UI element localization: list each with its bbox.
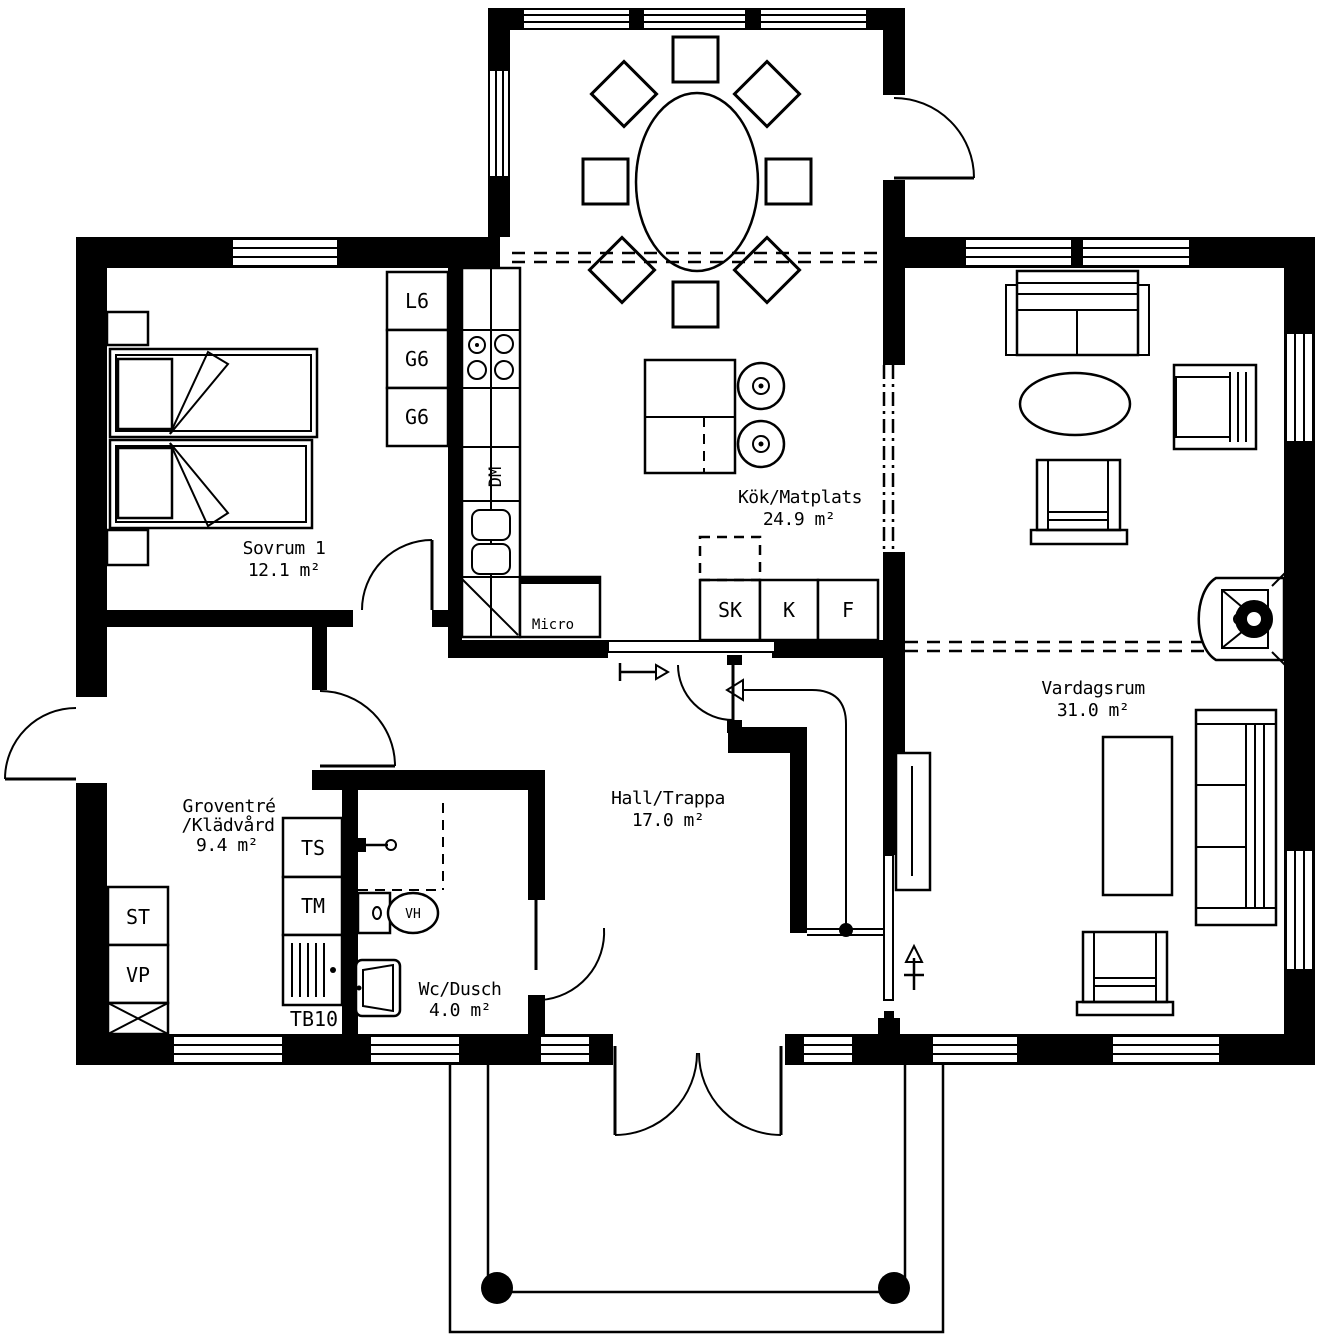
label-k: K — [783, 598, 795, 622]
window-bath-bottom — [370, 1036, 460, 1063]
window-dining-top-3 — [760, 9, 867, 29]
label-sk: SK — [718, 598, 742, 622]
bedroom-furniture — [107, 312, 317, 565]
room-label-hall: Hall/Trappa — [611, 788, 725, 809]
window-living-right-2 — [1286, 850, 1313, 970]
label-vp: VP — [126, 963, 150, 987]
stool-1 — [738, 363, 784, 409]
armchair-mid — [1031, 460, 1127, 544]
room-area-living: 31.0 m² — [1057, 700, 1129, 721]
window-entry-sidelight-right — [803, 1036, 853, 1063]
label-ts: TS — [301, 836, 325, 860]
room-area-hall: 17.0 m² — [632, 810, 704, 831]
sofa-two-seat — [1006, 271, 1149, 355]
window-dining-top-1 — [523, 9, 630, 29]
porch-post-left — [481, 1272, 513, 1304]
crossed-box — [108, 1003, 168, 1034]
window-dining-top-2 — [643, 9, 746, 29]
bed-1 — [110, 349, 317, 437]
dining-chair-bottom-right — [734, 237, 799, 302]
dashed-cabinet-above — [700, 537, 760, 580]
room-area-bath: 4.0 m² — [429, 1000, 491, 1021]
nightstand-1 — [107, 312, 148, 345]
dining-chair-bottom — [673, 282, 718, 327]
stool-2 — [738, 421, 784, 467]
window-living-top-2 — [1082, 239, 1190, 266]
label-tm: TM — [301, 894, 325, 918]
label-st: ST — [126, 905, 150, 929]
laundry-bench-tb10 — [283, 935, 342, 1005]
toilet — [358, 893, 438, 933]
dining-furniture — [583, 37, 811, 327]
room-label-bedroom: Sovrum 1 — [243, 538, 326, 559]
dining-chair-bottom-left — [589, 237, 654, 302]
sliding-door-kitchen — [585, 641, 775, 652]
room-label-bath: Wc/Dusch — [419, 979, 502, 1000]
window-bedroom-top — [232, 239, 338, 266]
label-dm: DM — [486, 467, 506, 487]
floor-plan-drawing: Sovrum 1 12.1 m² Kök/Matplats 24.9 m² Va… — [0, 0, 1319, 1344]
door-bedroom — [362, 540, 432, 610]
bed-2 — [110, 440, 312, 528]
oval-coffee-table — [1020, 373, 1130, 435]
room-area-bedroom: 12.1 m² — [248, 560, 320, 581]
label-g6-1: G6 — [405, 347, 429, 371]
label-l6: L6 — [405, 289, 429, 313]
room-label-utility-1: Groventré — [182, 796, 275, 817]
window-entry-sidelight-left — [540, 1036, 590, 1063]
dining-table — [636, 93, 758, 271]
window-living-bottom-1 — [932, 1036, 1018, 1063]
window-living-top-1 — [965, 239, 1072, 266]
room-label-utility-2: /Klädvård — [181, 815, 274, 836]
door-dining-exterior — [883, 95, 974, 180]
dining-chair-top-right — [734, 61, 799, 126]
kitchen-counter — [462, 268, 520, 637]
shower — [358, 803, 443, 890]
armchair-bottom — [1077, 932, 1173, 1015]
porch-post-right — [878, 1272, 910, 1304]
door-utility — [320, 691, 395, 766]
door-entrance-double — [613, 1034, 785, 1135]
label-tb10: TB10 — [290, 1007, 338, 1031]
kitchen-island — [645, 360, 735, 473]
floor-plan-page: Sovrum 1 12.1 m² Kök/Matplats 24.9 m² Va… — [0, 0, 1319, 1344]
dining-chair-right — [766, 159, 811, 204]
window-utility-bottom — [173, 1036, 283, 1063]
door-stair — [678, 665, 733, 720]
label-g6-2: G6 — [405, 405, 429, 429]
entrance-up-arrow-icon — [904, 946, 924, 990]
room-area-kitchen: 24.9 m² — [763, 509, 835, 530]
window-living-right-1 — [1286, 333, 1313, 442]
labels: Sovrum 1 12.1 m² Kök/Matplats 24.9 m² Va… — [126, 289, 1145, 1031]
label-micro: Micro — [532, 617, 574, 633]
label-f: F — [842, 598, 854, 622]
dining-chair-top — [673, 37, 718, 82]
sofa-three-seat — [1196, 710, 1276, 925]
coffee-table — [1103, 737, 1172, 895]
door-exterior-left — [5, 697, 107, 783]
nightstand-2 — [107, 530, 148, 565]
fireplace — [1199, 564, 1294, 674]
armchair-right-top — [1174, 365, 1256, 449]
porch — [450, 1065, 943, 1332]
dining-chair-left — [583, 159, 628, 204]
stair-direction-arrow-icon — [727, 680, 743, 700]
room-area-utility: 9.4 m² — [196, 835, 258, 856]
exterior-walls — [76, 8, 1315, 1065]
room-label-kitchen: Kök/Matplats — [738, 487, 862, 508]
room-label-living: Vardagsrum — [1041, 678, 1144, 699]
dining-chair-top-left — [591, 61, 656, 126]
door-bathroom — [536, 900, 604, 1000]
window-dining-left — [489, 70, 509, 177]
hall-direction-arrow-icon — [620, 663, 668, 681]
bathroom-sink — [356, 960, 400, 1016]
window-living-bottom-2 — [1112, 1036, 1220, 1063]
label-vh: VH — [405, 907, 421, 922]
